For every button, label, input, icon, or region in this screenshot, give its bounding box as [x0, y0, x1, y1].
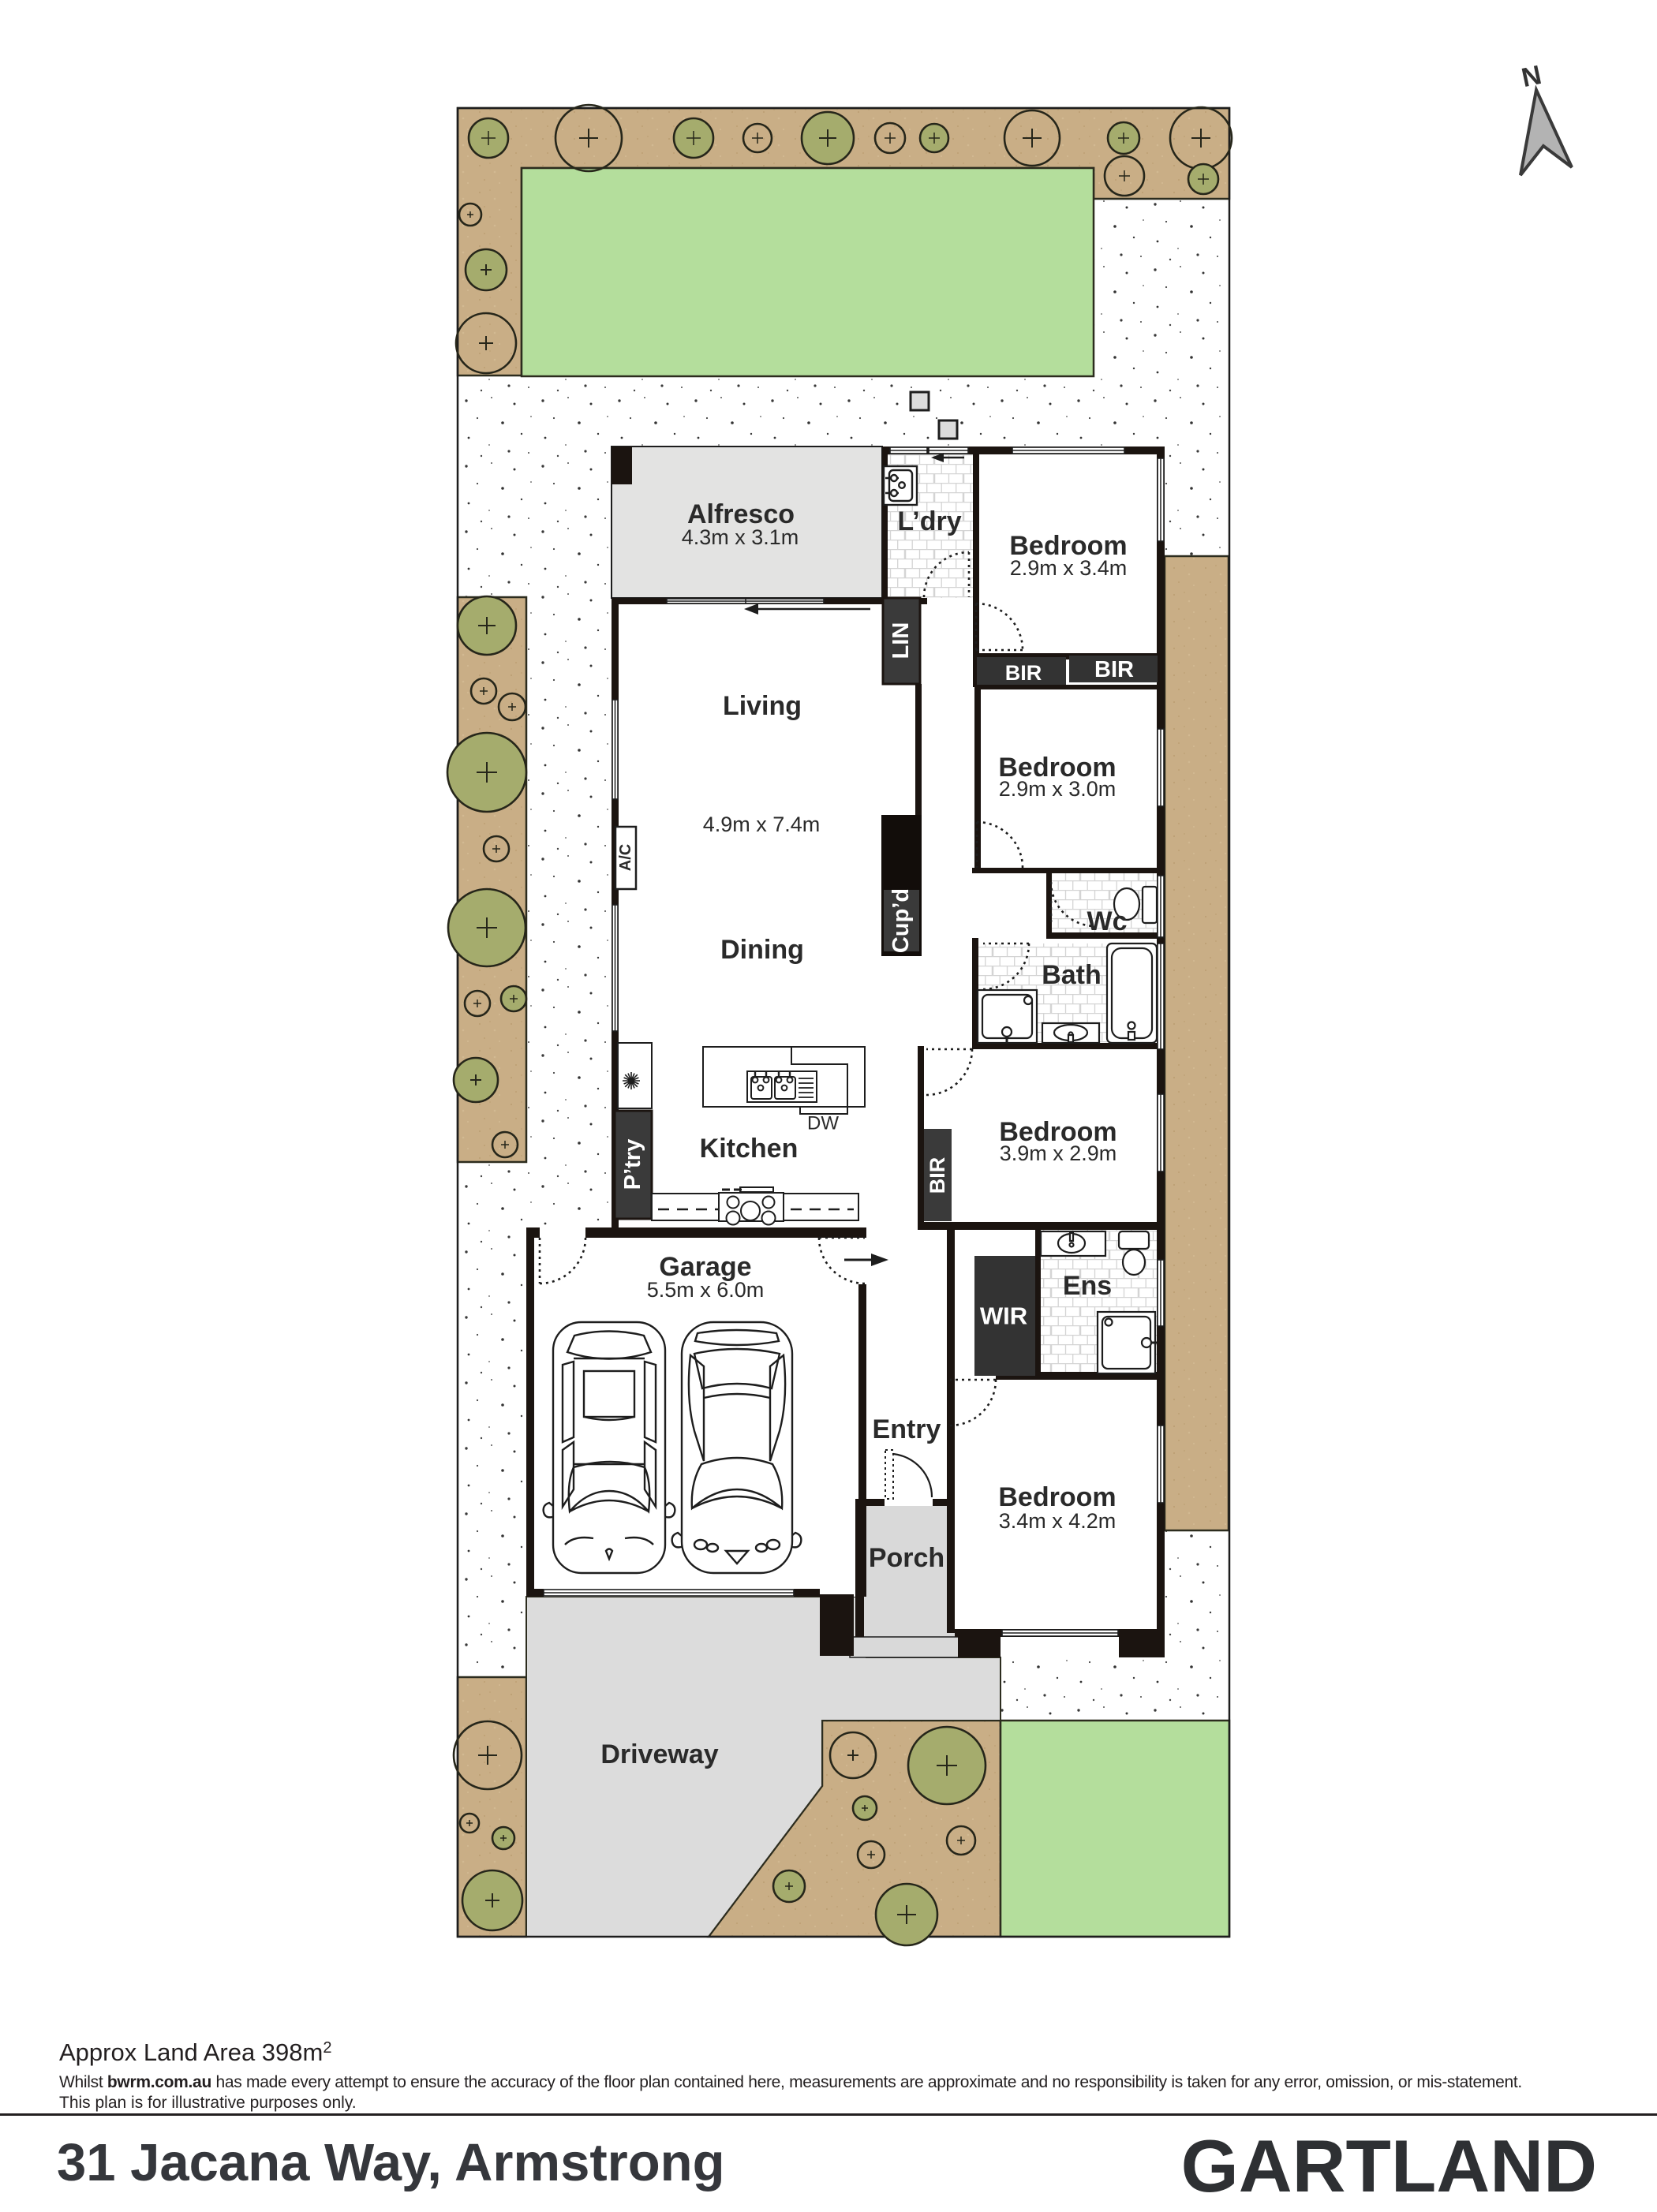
svg-text:Bath: Bath [1042, 960, 1102, 990]
svg-text:Bedroom: Bedroom [998, 1482, 1116, 1512]
svg-text:DW: DW [807, 1113, 839, 1134]
svg-text:Kitchen: Kitchen [700, 1134, 799, 1164]
svg-text:WIR: WIR [980, 1302, 1027, 1330]
svg-text:5.5m x 6.0m: 5.5m x 6.0m [647, 1278, 765, 1302]
svg-text:This plan is for illustrative: This plan is for illustrative purposes o… [59, 2094, 357, 2112]
svg-text:Ens: Ens [1063, 1271, 1112, 1301]
svg-text:3.4m x 4.2m: 3.4m x 4.2m [999, 1509, 1117, 1533]
svg-text:LIN: LIN [888, 622, 914, 659]
svg-text:P’try: P’try [620, 1139, 645, 1190]
svg-text:A/C: A/C [617, 844, 634, 871]
svg-text:4.3m x 3.1m: 4.3m x 3.1m [682, 525, 799, 549]
svg-text:2.9m x 3.0m: 2.9m x 3.0m [999, 777, 1117, 801]
svg-text:Whilst bwrm.com.au has made ev: Whilst bwrm.com.au has made every attemp… [59, 2073, 1522, 2091]
svg-text:Cup’d: Cup’d [888, 888, 914, 953]
svg-text:31 Jacana Way, Armstrong: 31 Jacana Way, Armstrong [57, 2133, 725, 2192]
svg-text:Approx Land Area 398m2: Approx Land Area 398m2 [59, 2038, 331, 2066]
svg-text:BIR: BIR [1094, 657, 1134, 682]
svg-text:Wc: Wc [1087, 906, 1128, 936]
svg-text:L’dry: L’dry [897, 506, 961, 536]
svg-text:GARTLAND: GARTLAND [1181, 2124, 1597, 2207]
svg-text:Porch: Porch [869, 1543, 944, 1573]
svg-text:2.9m x 3.4m: 2.9m x 3.4m [1010, 556, 1128, 580]
svg-text:4.9m x 7.4m: 4.9m x 7.4m [703, 813, 821, 836]
svg-text:Living: Living [723, 691, 802, 721]
svg-text:BIR: BIR [926, 1157, 949, 1194]
svg-text:3.9m x 2.9m: 3.9m x 2.9m [1000, 1141, 1117, 1165]
svg-text:Entry: Entry [873, 1414, 941, 1444]
svg-text:BIR: BIR [1005, 661, 1042, 685]
svg-text:Dining: Dining [720, 935, 804, 965]
svg-text:Driveway: Driveway [600, 1739, 718, 1769]
